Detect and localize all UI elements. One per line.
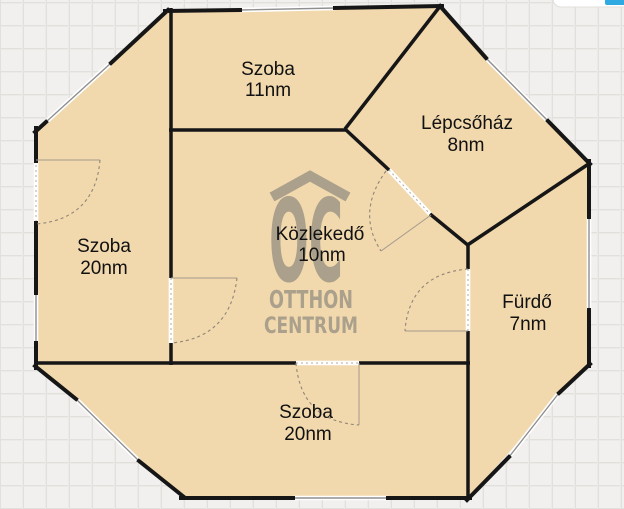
room-name: Fürdő: [502, 292, 552, 313]
room-name: Szoba: [279, 402, 333, 423]
room-area: 8nm: [448, 135, 485, 156]
room-area: 7nm: [510, 314, 547, 335]
room-area: 20nm: [284, 424, 332, 445]
room-name: Közlekedő: [276, 224, 365, 245]
watermark-line1: OTTHON: [269, 285, 353, 314]
floorplan-page: OC OTTHON CENTRUM Szoba 11nm: [0, 0, 624, 509]
accent-button-fragment[interactable]: [605, 0, 624, 5]
room-name: Szoba: [241, 59, 295, 80]
room-name: Szoba: [77, 236, 131, 257]
room-label-furdo: Fürdő 7nm: [502, 292, 552, 335]
watermark-line2: CENTRUM: [264, 313, 358, 339]
room-area: 11nm: [245, 80, 291, 101]
room-area: 20nm: [80, 258, 128, 279]
room-label-szoba-top: Szoba 11nm: [241, 59, 295, 101]
room-label-szoba-left: Szoba 20nm: [77, 236, 131, 279]
room-label-szoba-bottom: Szoba 20nm: [279, 402, 333, 445]
floorplan-svg: OC OTTHON CENTRUM Szoba 11nm: [0, 0, 624, 509]
room-name: Lépcsőház: [421, 113, 513, 134]
room-area: 10nm: [298, 245, 346, 266]
browser-ui-fragment[interactable]: [553, 0, 624, 7]
